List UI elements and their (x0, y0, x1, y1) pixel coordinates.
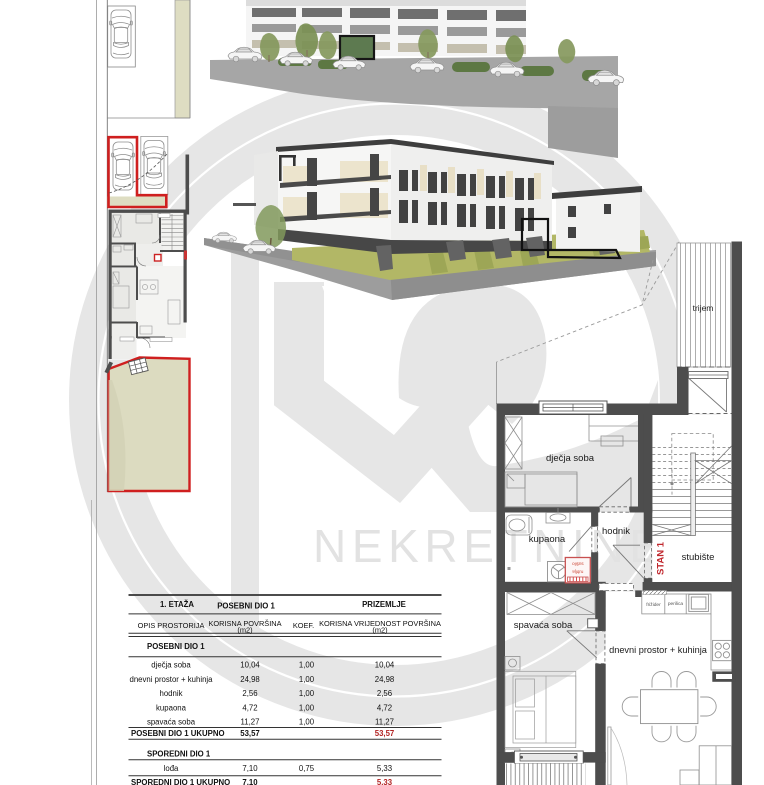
svg-text:7,10: 7,10 (242, 778, 258, 785)
svg-text:SPOREDNI DIO 1: SPOREDNI DIO 1 (147, 750, 211, 759)
svg-text:dnevni prostor + kuhinja: dnevni prostor + kuhinja (129, 675, 213, 684)
svg-text:10,04: 10,04 (240, 661, 260, 670)
svg-text:kupaona: kupaona (529, 534, 566, 545)
svg-text:PRIZEMLJE: PRIZEMLJE (362, 600, 406, 609)
svg-text:1. ETAŽA: 1. ETAŽA (160, 600, 194, 609)
svg-text:hodnik: hodnik (602, 526, 630, 537)
svg-text:(m2): (m2) (237, 626, 252, 635)
svg-text:24,98: 24,98 (375, 675, 395, 684)
svg-text:2,56: 2,56 (242, 689, 257, 698)
svg-text:1,00: 1,00 (299, 689, 315, 698)
svg-text:sušilo: sušilo (572, 562, 584, 567)
svg-text:5,33: 5,33 (377, 778, 393, 785)
svg-text:hodnik: hodnik (160, 689, 183, 698)
svg-text:POSEBNI DIO 1: POSEBNI DIO 1 (147, 642, 205, 651)
svg-text:11,27: 11,27 (375, 718, 394, 727)
svg-text:POSEBNI DIO 1 UKUPNO: POSEBNI DIO 1 UKUPNO (131, 729, 225, 738)
svg-text:dječja soba: dječja soba (151, 661, 191, 670)
svg-text:11,27: 11,27 (241, 718, 260, 727)
svg-text:OPIS PROSTORIJA: OPIS PROSTORIJA (138, 621, 205, 630)
svg-text:4,72: 4,72 (242, 703, 257, 712)
svg-text:perilica: perilica (668, 601, 684, 607)
svg-text:0,75: 0,75 (299, 764, 315, 773)
svg-text:1,00: 1,00 (299, 661, 315, 670)
svg-text:STAN 1: STAN 1 (656, 541, 667, 575)
svg-text:1,00: 1,00 (299, 703, 315, 712)
svg-text:rublja: rublja (572, 570, 584, 575)
svg-text:spavaća soba: spavaća soba (147, 718, 196, 727)
svg-text:4,72: 4,72 (377, 703, 392, 712)
svg-text:kupaona: kupaona (156, 703, 187, 712)
svg-text:(m2): (m2) (372, 626, 387, 635)
svg-text:lođa: lođa (164, 764, 179, 773)
svg-text:dječja soba: dječja soba (546, 453, 595, 464)
svg-text:dnevni prostor + kuhinja: dnevni prostor + kuhinja (609, 645, 708, 655)
svg-text:1,00: 1,00 (299, 718, 315, 727)
svg-text:5,33: 5,33 (377, 764, 392, 773)
svg-text:spavaća soba: spavaća soba (514, 620, 573, 631)
svg-text:KOEF.: KOEF. (293, 621, 314, 630)
svg-text:trijem: trijem (693, 303, 714, 313)
svg-text:2,56: 2,56 (377, 689, 392, 698)
svg-text:POSEBNI DIO 1: POSEBNI DIO 1 (217, 602, 275, 611)
svg-text:SPOREDNI DIO 1 UKUPNO: SPOREDNI DIO 1 UKUPNO (131, 778, 230, 785)
svg-text:1,00: 1,00 (299, 675, 315, 684)
svg-text:24,98: 24,98 (240, 675, 260, 684)
svg-text:10,04: 10,04 (375, 661, 395, 670)
svg-text:53,57: 53,57 (240, 729, 260, 738)
svg-text:stubište: stubište (682, 552, 715, 563)
svg-text:53,57: 53,57 (375, 729, 395, 738)
svg-text:frižider: frižider (646, 602, 661, 608)
svg-text:7,10: 7,10 (242, 764, 258, 773)
